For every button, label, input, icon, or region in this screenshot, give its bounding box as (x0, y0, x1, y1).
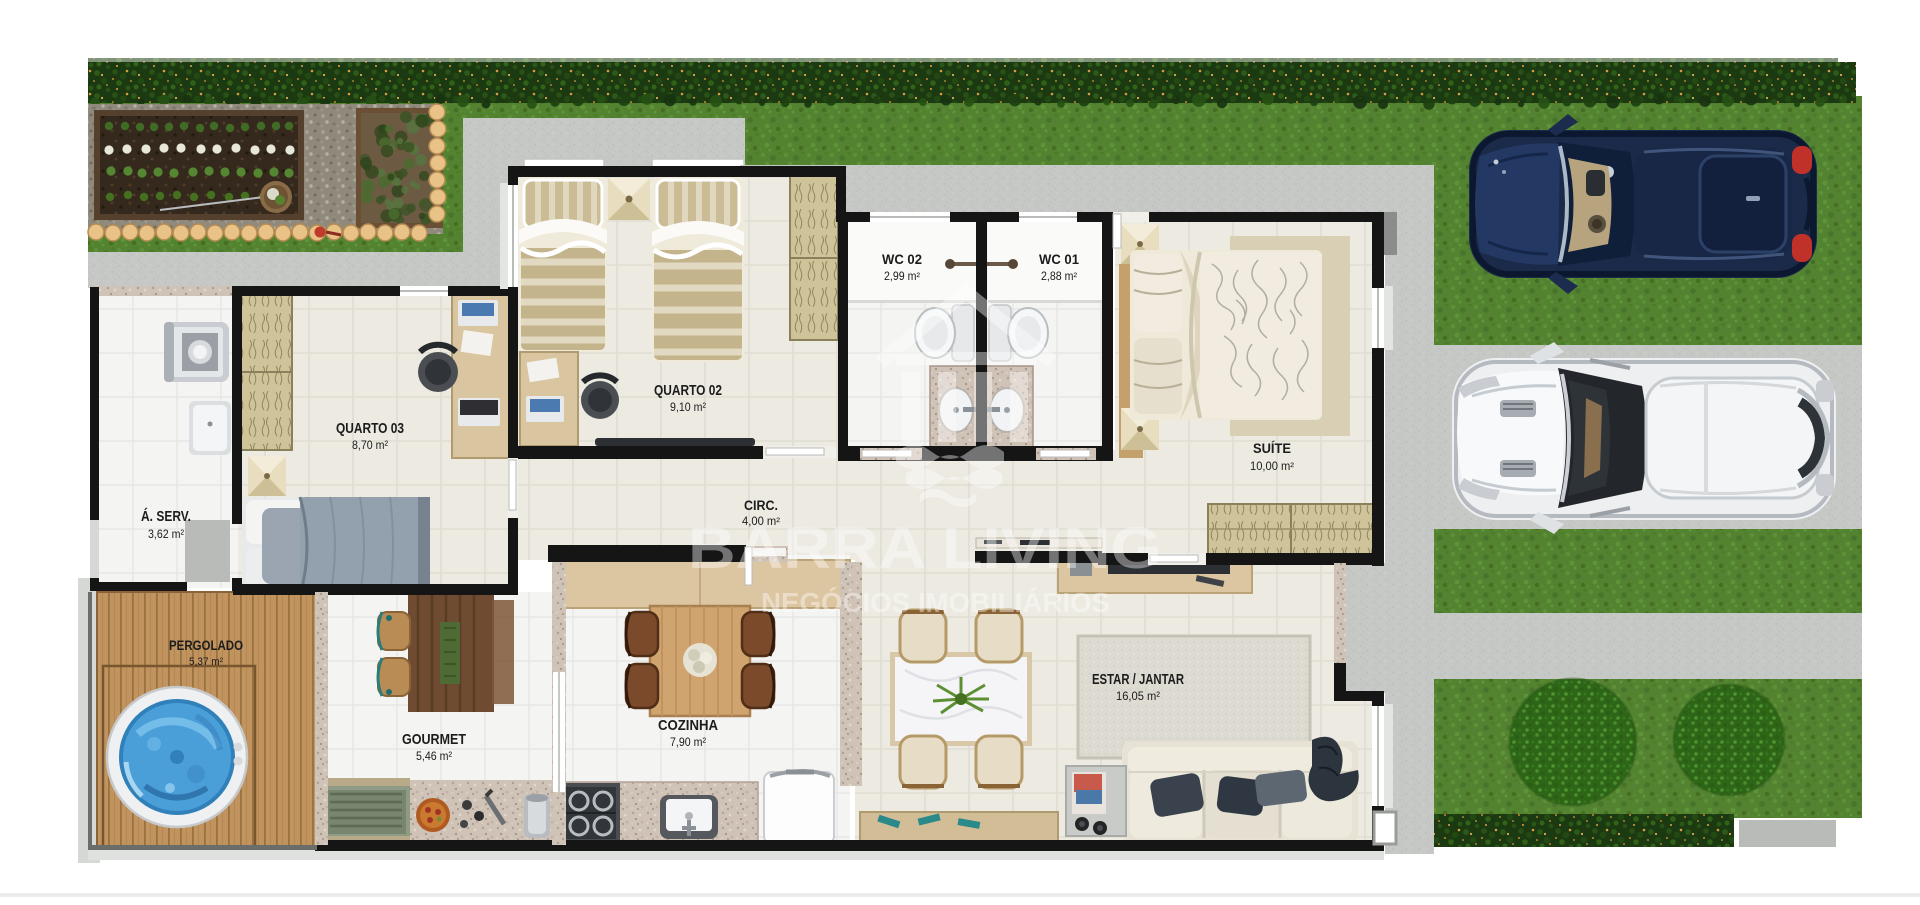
svg-text:2,88 m²: 2,88 m² (1041, 271, 1077, 283)
svg-text:WC 01: WC 01 (1039, 251, 1079, 267)
svg-text:PERGOLADO: PERGOLADO (169, 637, 243, 653)
svg-text:ESTAR / JANTAR: ESTAR / JANTAR (1092, 671, 1184, 688)
svg-text:5,46 m²: 5,46 m² (416, 749, 452, 763)
svg-text:10,00 m²: 10,00 m² (1250, 461, 1294, 473)
svg-text:Á. SERV.: Á. SERV. (141, 508, 191, 525)
svg-text:3,62 m²: 3,62 m² (148, 527, 184, 541)
svg-text:5,37 m²: 5,37 m² (189, 656, 223, 668)
svg-text:QUARTO 02: QUARTO 02 (654, 382, 722, 399)
svg-text:NEGÓCIOS IMOBILIÁRIOS: NEGÓCIOS IMOBILIÁRIOS (761, 587, 1110, 618)
svg-text:9,10 m²: 9,10 m² (670, 400, 706, 414)
svg-text:GOURMET: GOURMET (402, 731, 466, 748)
svg-text:8,70 m²: 8,70 m² (352, 438, 388, 452)
svg-text:CIRC.: CIRC. (744, 498, 778, 513)
svg-text:SUÍTE: SUÍTE (1253, 440, 1291, 456)
svg-text:7,90 m²: 7,90 m² (670, 735, 706, 749)
svg-text:COZINHA: COZINHA (658, 717, 718, 734)
svg-text:2,99 m²: 2,99 m² (884, 271, 920, 283)
svg-text:QUARTO 03: QUARTO 03 (336, 420, 404, 437)
svg-text:16,05 m²: 16,05 m² (1116, 689, 1160, 703)
svg-text:WC 02: WC 02 (882, 251, 922, 267)
svg-text:BARRA LIVING: BARRA LIVING (688, 516, 1162, 581)
